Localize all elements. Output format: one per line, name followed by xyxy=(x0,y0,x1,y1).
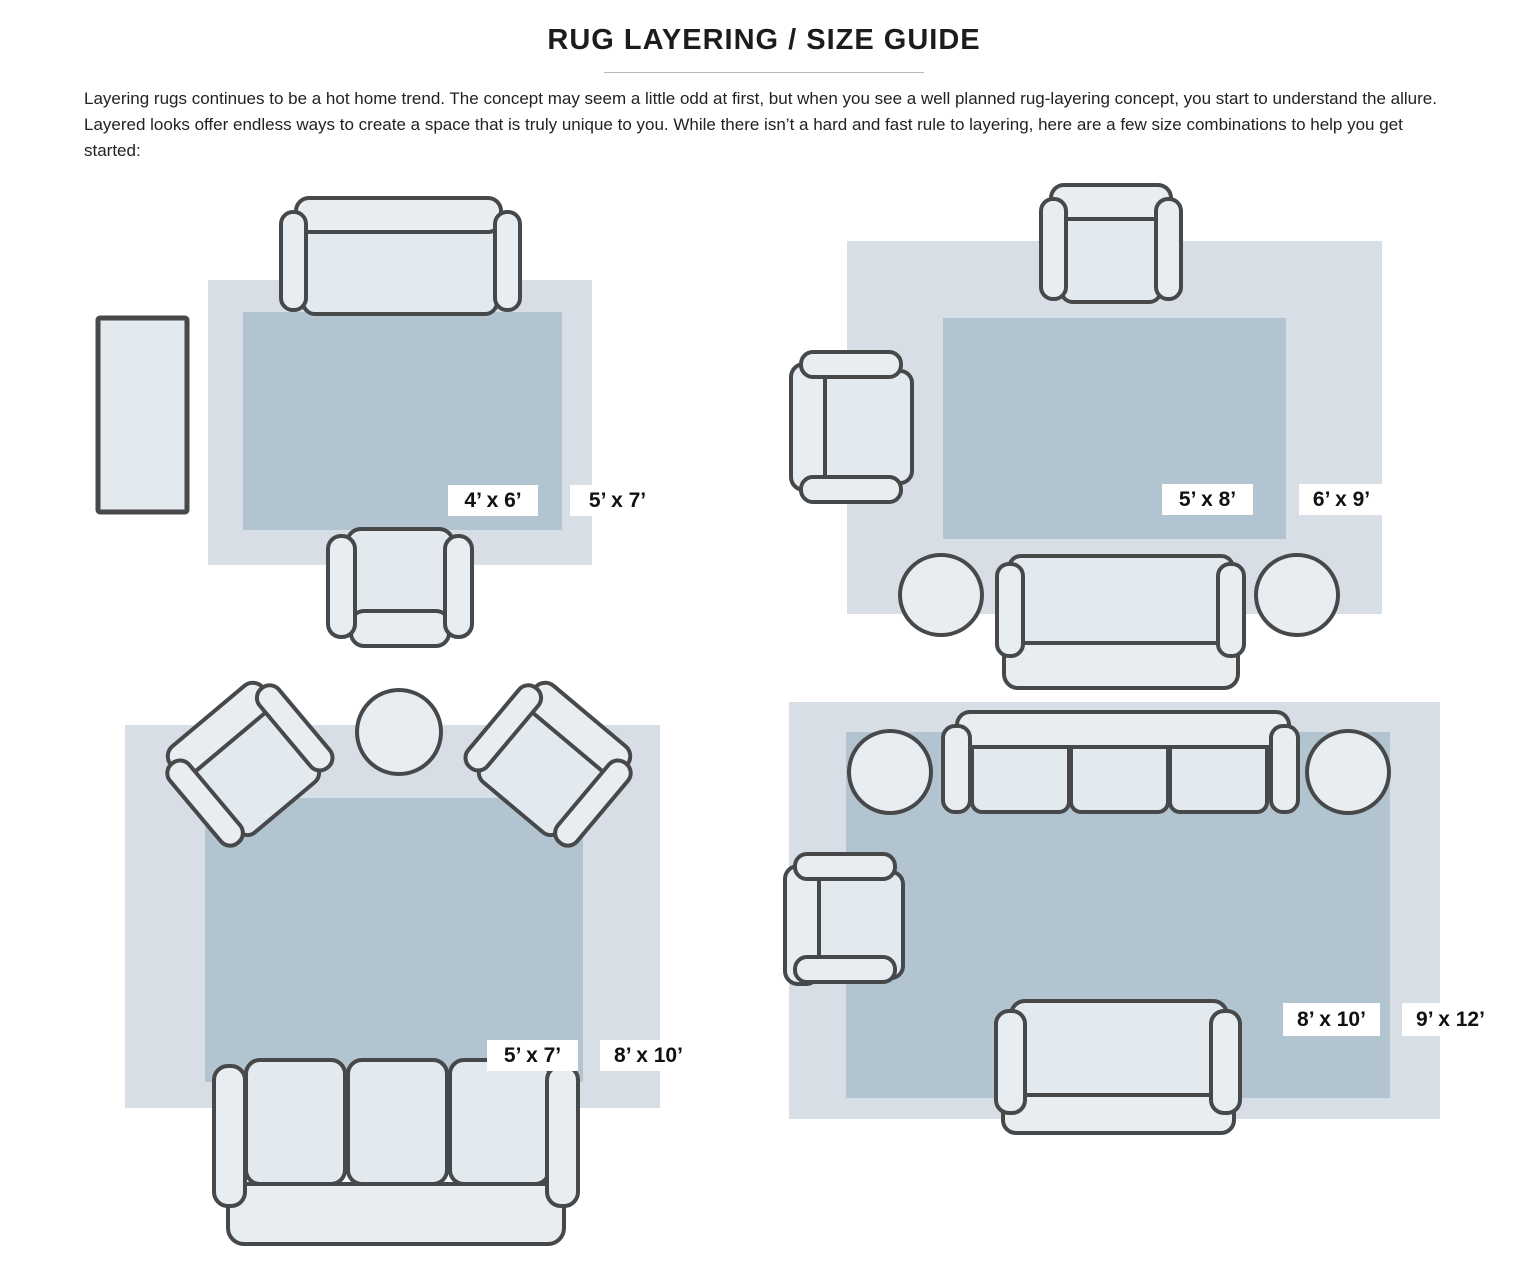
rug-size-label-outer: 8’ x 10’ xyxy=(600,1040,697,1071)
round-side-table xyxy=(1256,555,1338,635)
diagram-bottom-left xyxy=(125,670,660,1244)
rug-size-label-inner: 8’ x 10’ xyxy=(1283,1003,1380,1036)
armchair xyxy=(328,529,472,646)
armchair-left xyxy=(791,352,912,502)
loveseat xyxy=(996,1001,1240,1133)
sofa-bottom xyxy=(997,556,1244,688)
armchair-top xyxy=(1041,185,1181,302)
round-side-table xyxy=(900,555,982,635)
rug-layering-size-guide: RUG LAYERING / SIZE GUIDE Layering rugs … xyxy=(0,0,1528,1265)
floor-plan-illustration xyxy=(0,0,1528,1265)
round-side-table xyxy=(357,690,441,774)
sofa xyxy=(281,198,520,314)
round-side-table xyxy=(849,731,931,813)
rug-size-label-inner: 5’ x 7’ xyxy=(487,1040,578,1071)
diagram-bottom-right xyxy=(785,702,1440,1133)
rug-size-label-inner: 4’ x 6’ xyxy=(448,485,538,516)
rug-size-label-outer: 9’ x 12’ xyxy=(1402,1003,1499,1036)
round-side-table xyxy=(1307,731,1389,813)
three-seat-sofa xyxy=(214,1060,578,1244)
diagram-top-right xyxy=(791,185,1382,688)
rug-size-label-inner: 5’ x 8’ xyxy=(1162,484,1253,515)
diagram-top-left xyxy=(98,198,592,646)
rug-size-label-outer: 5’ x 7’ xyxy=(570,485,665,516)
three-seat-sofa-top xyxy=(943,712,1298,812)
side-table xyxy=(98,318,187,512)
rug-size-label-outer: 6’ x 9’ xyxy=(1299,484,1384,515)
armchair-left xyxy=(785,854,903,984)
